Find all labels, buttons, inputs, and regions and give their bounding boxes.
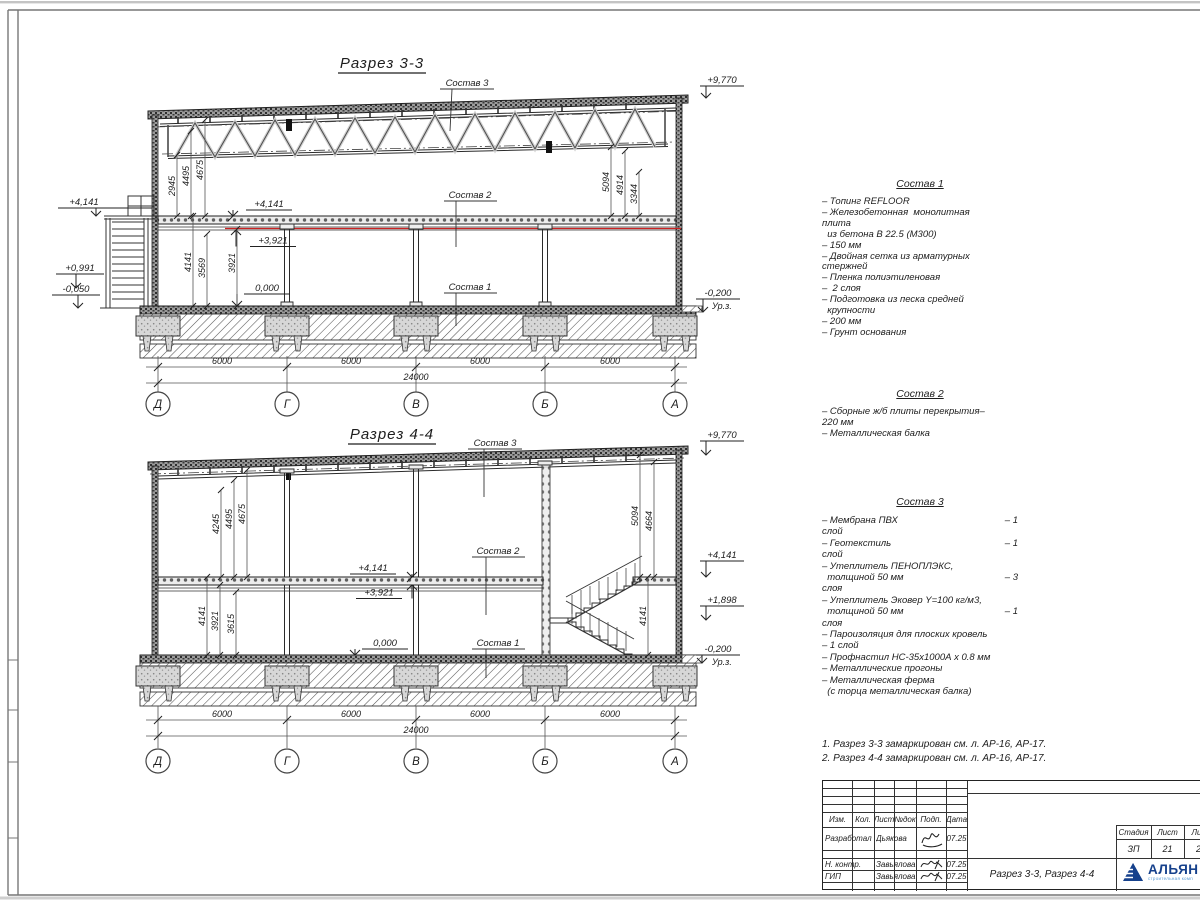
dim-6000: 6000	[600, 709, 620, 719]
svg-text:Б: Б	[541, 756, 549, 768]
tb-name-zavyalova: Завьялова	[876, 870, 916, 882]
tb-header-podp: Подп.	[916, 812, 946, 827]
sostav2-label: Состав 2	[449, 190, 493, 201]
svg-text:Д: Д	[152, 756, 162, 768]
dim-6000: 6000	[470, 356, 490, 366]
ground-level-label: Ур.з.	[711, 657, 732, 667]
tb-header-ndok: №док	[894, 812, 916, 827]
tb-sheets-label: Лис	[1184, 825, 1200, 839]
signature-scribble	[919, 870, 945, 882]
text-line: – Геотекстиль– 1	[822, 538, 1018, 549]
logo-tagline: строительная комп	[1148, 876, 1199, 881]
dim-24000: 24000	[402, 372, 428, 382]
dim-4675: 4675	[195, 159, 205, 180]
elev-landing: +1,898	[707, 595, 737, 606]
dim-2945: 2945	[167, 175, 177, 197]
sostav3-label: Состав 3	[474, 438, 518, 449]
svg-text:А: А	[670, 399, 679, 411]
elev-ground: -0,200	[705, 288, 733, 299]
dim-4675: 4675	[237, 503, 247, 524]
spec-body: – Сборные ж/б плиты перекрытия–220 мм– М…	[822, 407, 1018, 440]
tb-doc-title: Разрез 3-3, Разрез 4-4	[973, 860, 1111, 888]
elev-landing-out: +4,141	[69, 197, 98, 208]
drawing-sheet: { "sections": { "s33": { "title": "Разре…	[0, 0, 1200, 900]
axis-bubbles: Д Г В Б А	[146, 749, 687, 773]
axis-bubbles: Д Г В Б А	[146, 392, 687, 416]
tb-role-razrabotal: Разработал	[825, 827, 874, 850]
sheet-notes: 1. Разрез 3-3 замаркирован см. л. АР-16,…	[822, 738, 1122, 765]
tb-stage-value: ЗП	[1116, 839, 1151, 858]
tb-sheet-value: 21	[1151, 839, 1184, 858]
text-line: – Утеплитель Эковер Y=100 кг/м3,	[822, 595, 1018, 606]
section-3-3-title: Разрез 3-3	[340, 55, 424, 72]
tb-header-list: Лист	[874, 812, 894, 827]
tb-stage-label: Стадия	[1116, 825, 1151, 839]
text-line: толщиной 50 мм– 1	[822, 606, 1018, 617]
text-line: 2. Разрез 4-4 замаркирован см. л. АР-16,…	[822, 752, 1122, 766]
spec-sostav-3: Состав 3 – Мембрана ПВХ– 1слой– Геотекст…	[822, 496, 1018, 698]
tb-date: 07.25	[946, 858, 967, 870]
dim-4141: 4141	[197, 606, 207, 626]
dim-24000: 24000	[402, 725, 428, 735]
dim-5094: 5094	[630, 506, 640, 526]
elev-grade-out: -0,050	[63, 284, 91, 295]
elev-floor: 0,000	[255, 283, 279, 294]
tb-role-nkontr: Н. контр.	[825, 858, 874, 870]
dim-6000: 6000	[470, 709, 490, 719]
text-line: слоя	[822, 583, 1018, 594]
text-line: – Металлическая ферма	[822, 675, 1018, 686]
tb-name-dyakova: Дьякова	[876, 827, 916, 850]
dim-6000: 6000	[212, 709, 232, 719]
elev-ground: -0,200	[705, 644, 733, 655]
sostav2-label: Состав 2	[477, 546, 521, 557]
tb-sheets-value: 2	[1184, 839, 1200, 858]
tb-sheet-label: Лист	[1151, 825, 1184, 839]
dim-3344: 3344	[629, 184, 639, 204]
text-line: – Металлическая балка	[822, 429, 1018, 440]
dim-3615: 3615	[226, 613, 236, 634]
elev-slab-under: +3,921	[364, 588, 393, 599]
svg-text:Д: Д	[152, 399, 162, 411]
elev-slab: +4,141	[358, 563, 387, 574]
section-4-4-drawing: Разрез 4-4	[136, 426, 744, 773]
text-line: слой	[822, 526, 1018, 537]
svg-text:Б: Б	[541, 399, 549, 411]
spec-title: Состав 1	[822, 178, 1018, 190]
text-line: – Грунт основания	[822, 328, 1018, 339]
spec-title: Состав 2	[822, 388, 1018, 400]
text-line: – Утеплитель ПЕНОПЛЭКС,	[822, 561, 1018, 572]
dim-6000: 6000	[212, 356, 232, 366]
company-logo: АЛЬЯН строительная комп	[1123, 863, 1199, 881]
dim-5094: 5094	[601, 172, 611, 192]
dim-6000: 6000	[341, 709, 361, 719]
tb-date: 07.25	[946, 870, 967, 882]
svg-text:А: А	[670, 756, 679, 768]
staircase	[550, 556, 642, 660]
section-3-3-drawing: Разрез 3-3	[52, 55, 744, 416]
signature-scribble	[919, 829, 945, 849]
spec-body: – Топинг REFLOOR– Железобетонная монолит…	[822, 197, 1018, 339]
elev-slab-right: +4,141	[707, 550, 736, 561]
dim-6000: 6000	[341, 356, 361, 366]
dim-4495: 4495	[224, 508, 234, 529]
text-line: 1. Разрез 3-3 замаркирован см. л. АР-16,…	[822, 738, 1122, 752]
dim-4141: 4141	[638, 606, 648, 626]
spec-body: – Мембрана ПВХ– 1слой– Геотекстиль– 1сло…	[822, 515, 1018, 698]
spec-sostav-2: Состав 2 – Сборные ж/б плиты перекрытия–…	[822, 388, 1018, 440]
signature-scribble	[919, 858, 945, 870]
dim-4914: 4914	[615, 175, 625, 195]
sostav1-label: Состав 1	[477, 638, 520, 649]
dim-3921: 3921	[227, 253, 237, 273]
dim-4245: 4245	[211, 513, 221, 534]
text-line: – Пароизоляция для плоских кровель	[822, 629, 1018, 640]
ground-level-label: Ур.з.	[711, 301, 732, 311]
elev-roof: +9,770	[707, 75, 737, 86]
dim-4141: 4141	[183, 252, 193, 272]
svg-text:В: В	[412, 756, 420, 768]
text-line: – 1 слой	[822, 640, 1018, 651]
tb-name-zavyalova: Завьялова	[876, 858, 916, 870]
dim-6000: 6000	[600, 356, 620, 366]
text-line: из бетона В 22.5 (М300)	[822, 230, 1018, 241]
tb-role-gip: ГИП	[825, 870, 874, 882]
text-line: толщиной 50 мм– 3	[822, 572, 1018, 583]
elev-slab-under: +3,921	[258, 236, 287, 247]
text-line: – Мембрана ПВХ– 1	[822, 515, 1018, 526]
tb-header-kol: Кол.	[852, 812, 874, 827]
elev-floor: 0,000	[373, 638, 397, 649]
text-line: – Профнастил НС-35х1000А х 0.8 мм	[822, 652, 1018, 663]
dim-4495: 4495	[181, 165, 191, 186]
svg-text:Г: Г	[284, 399, 291, 411]
tb-date: 07.25	[946, 827, 967, 850]
drawing-canvas: Разрез 3-3	[0, 0, 1200, 900]
elev-slab: +4,141	[254, 199, 283, 210]
logo-pyramid-icon	[1123, 863, 1143, 881]
dim-4664: 4664	[644, 511, 654, 531]
title-block: Изм. Кол. Лист №док Подп. Дата Разработа…	[822, 780, 1200, 890]
elev-roof: +9,770	[707, 430, 737, 441]
logo-text: АЛЬЯН	[1148, 863, 1199, 876]
dim-3921: 3921	[210, 611, 220, 631]
text-line: – 150 мм	[822, 241, 1018, 252]
text-line: – Железобетонная монолитная	[822, 208, 1018, 219]
sostav1-label: Состав 1	[449, 282, 492, 293]
text-line: слоя	[822, 618, 1018, 629]
tb-header-izm: Изм.	[823, 812, 852, 827]
section-4-4-title: Разрез 4-4	[350, 426, 434, 443]
text-line: слой	[822, 549, 1018, 560]
spec-title: Состав 3	[822, 496, 1018, 508]
elev-mid-out: +0,991	[65, 263, 94, 274]
svg-text:Г: Г	[284, 756, 291, 768]
svg-text:В: В	[412, 399, 420, 411]
text-line: – Металлические прогоны	[822, 663, 1018, 674]
exterior-stair	[100, 196, 158, 308]
dim-3569: 3569	[197, 258, 207, 278]
sostav3-label: Состав 3	[446, 78, 490, 89]
text-line: (с торца металлическая балка)	[822, 686, 1018, 697]
tb-header-data: Дата	[946, 812, 967, 827]
spec-sostav-1: Состав 1 – Топинг REFLOOR– Железобетонна…	[822, 178, 1018, 339]
